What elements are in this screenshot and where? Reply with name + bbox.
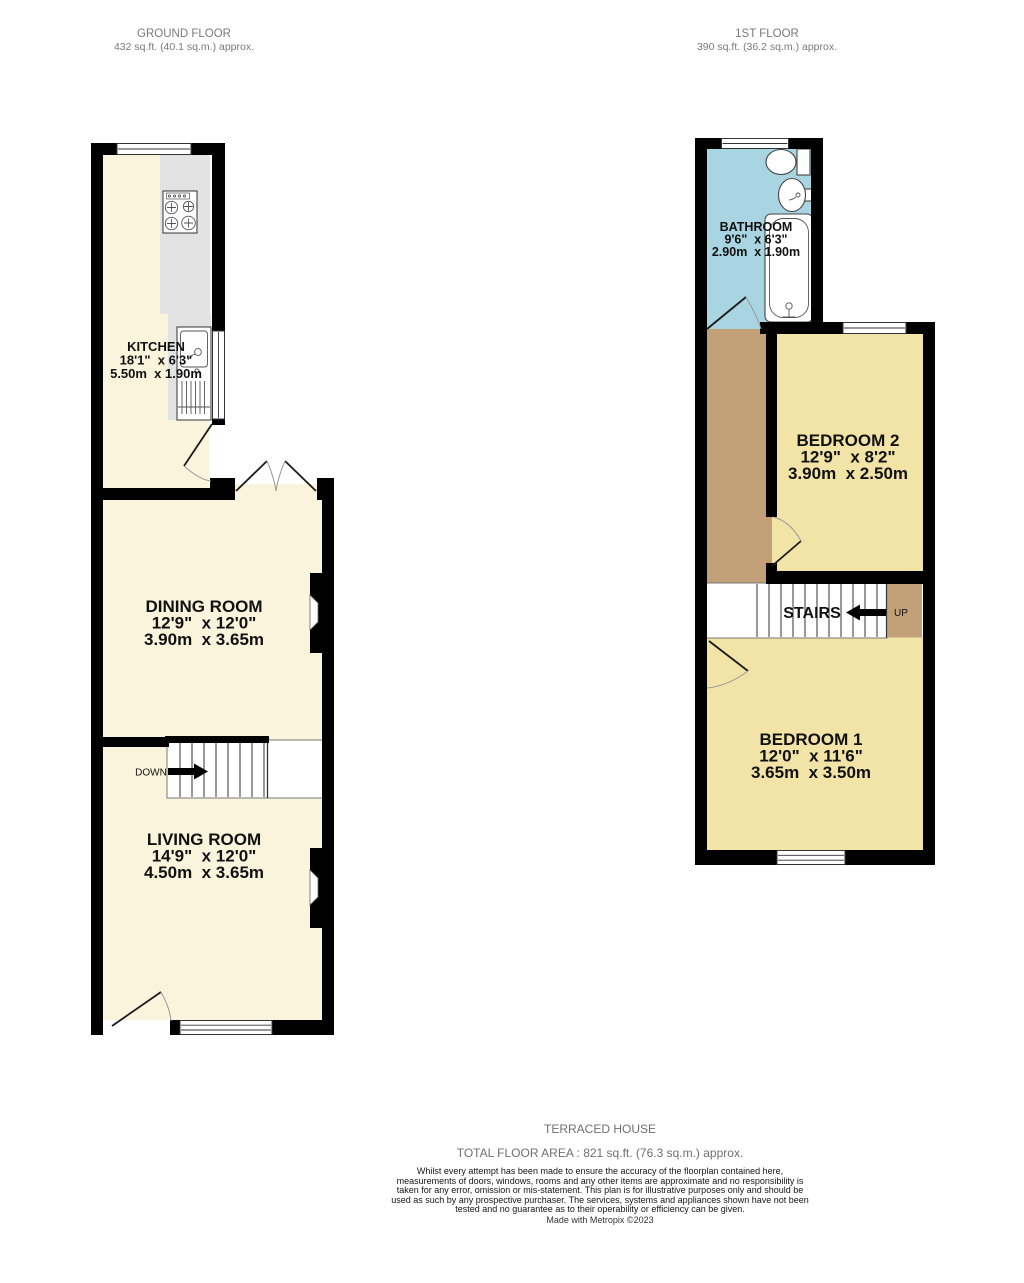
stove-icon bbox=[163, 191, 197, 233]
property-type: TERRACED HOUSE bbox=[388, 1122, 812, 1136]
total-floor-area: TOTAL FLOOR AREA : 821 sq.ft. (76.3 sq.m… bbox=[388, 1146, 812, 1160]
front-door-opening bbox=[103, 1020, 170, 1035]
bathroom-dims-metric: 2.90m x 1.90m bbox=[712, 245, 800, 259]
bedroom1-dims-metric: 3.65m x 3.50m bbox=[751, 763, 871, 782]
first-floor-plan: BATHROOM 9'6" x 6'3" 2.90m x 1.90m BEDRO… bbox=[695, 138, 935, 865]
ground-floor-plan: KITCHEN 18'1" x 6'3" 5.50m x 1.90m DININ… bbox=[91, 143, 334, 1035]
stairs-ground bbox=[165, 736, 323, 798]
living-room-window bbox=[180, 1021, 272, 1035]
bedroom2-dims-metric: 3.90m x 2.50m bbox=[788, 464, 908, 483]
bedroom1-window bbox=[777, 851, 845, 865]
metropix-credit: Made with Metropix ©2023 bbox=[388, 1215, 812, 1225]
stairs-label: STAIRS bbox=[783, 605, 841, 622]
down-label: DOWN bbox=[135, 768, 167, 779]
landing bbox=[701, 329, 772, 583]
kitchen-dims-metric: 5.50m x 1.90m bbox=[110, 366, 202, 381]
up-label: UP bbox=[894, 608, 908, 619]
dining-room-dims-metric: 3.90m x 3.65m bbox=[144, 630, 264, 649]
toilet-icon bbox=[766, 149, 810, 175]
disclaimer-text: Whilst every attempt has been made to en… bbox=[388, 1167, 812, 1215]
floorplan-drawing: KITCHEN 18'1" x 6'3" 5.50m x 1.90m DININ… bbox=[0, 0, 1024, 1283]
floorplan-page: GROUND FLOOR 432 sq.ft. (40.1 sq.m.) app… bbox=[0, 0, 1024, 1283]
living-room-dims-metric: 4.50m x 3.65m bbox=[144, 863, 264, 882]
footer: TERRACED HOUSE TOTAL FLOOR AREA : 821 sq… bbox=[388, 1122, 812, 1225]
